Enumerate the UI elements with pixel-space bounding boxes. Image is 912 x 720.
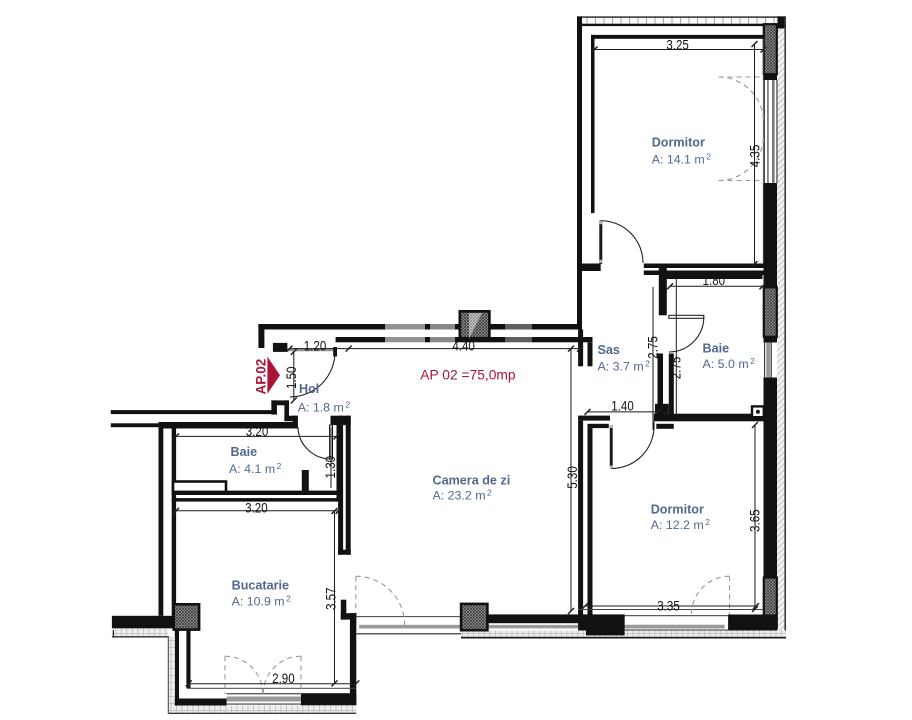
svg-text:Dormitor: Dormitor <box>651 503 704 517</box>
svg-text:Bucatarie: Bucatarie <box>232 578 289 592</box>
svg-text:AP.02: AP.02 <box>254 359 269 395</box>
svg-text:A: 5.0 m2: A: 5.0 m2 <box>703 356 756 371</box>
svg-text:A: 10.9 m2: A: 10.9 m2 <box>232 594 292 609</box>
svg-text:Camera de zi: Camera de zi <box>433 474 511 488</box>
svg-text:A: 1.8 m2: A: 1.8 m2 <box>298 399 351 414</box>
svg-text:Sas: Sas <box>598 343 620 357</box>
svg-text:4.35: 4.35 <box>748 145 763 168</box>
svg-text:2.75: 2.75 <box>646 336 661 359</box>
svg-text:2.75: 2.75 <box>669 357 684 380</box>
svg-text:3.65: 3.65 <box>748 509 763 532</box>
svg-text:A: 3.7 m2: A: 3.7 m2 <box>598 359 651 374</box>
svg-text:3.20: 3.20 <box>245 501 268 516</box>
svg-text:1.40: 1.40 <box>611 399 634 414</box>
svg-text:Baie: Baie <box>703 342 730 356</box>
svg-text:3.57: 3.57 <box>323 588 338 611</box>
svg-text:Baie: Baie <box>231 445 258 459</box>
svg-text:3.20: 3.20 <box>246 424 269 439</box>
svg-text:A: 12.2 m2: A: 12.2 m2 <box>651 517 711 532</box>
svg-text:5.30: 5.30 <box>565 466 580 489</box>
svg-text:4.40: 4.40 <box>452 339 475 354</box>
svg-text:3.35: 3.35 <box>657 599 680 614</box>
svg-text:Dormitor: Dormitor <box>652 136 705 150</box>
svg-text:A: 23.2 m2: A: 23.2 m2 <box>433 488 493 503</box>
svg-text:1.80: 1.80 <box>703 273 726 288</box>
svg-text:A: 4.1 m2: A: 4.1 m2 <box>229 461 282 476</box>
svg-text:2.90: 2.90 <box>272 671 295 686</box>
svg-text:1.20: 1.20 <box>304 339 327 354</box>
svg-text:Hol: Hol <box>299 382 319 396</box>
svg-text:1.30: 1.30 <box>323 456 338 479</box>
svg-text:3.25: 3.25 <box>666 37 689 52</box>
svg-text:1.50: 1.50 <box>284 367 299 390</box>
svg-text:AP 02 =75,0mp: AP 02 =75,0mp <box>420 367 516 382</box>
svg-text:A: 14.1 m2: A: 14.1 m2 <box>652 152 712 167</box>
